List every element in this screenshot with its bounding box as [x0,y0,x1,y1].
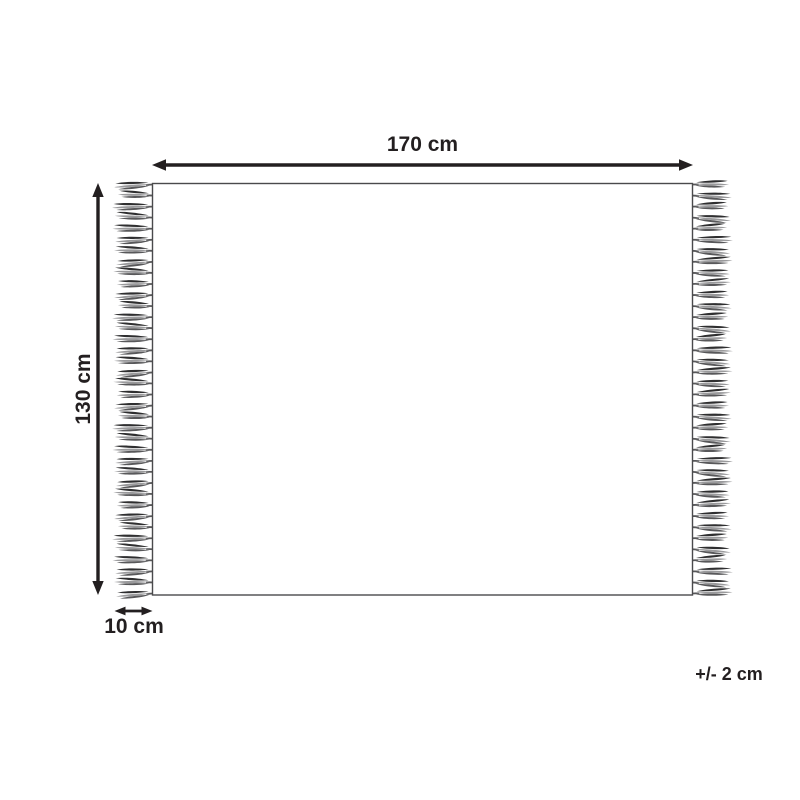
fringe-tassel [692,555,727,564]
fringe-tassel [112,556,152,564]
fringe-tassel [118,190,153,199]
fringe-tassel [692,588,732,597]
fringe-tassel [692,357,730,367]
fringe-tassel [115,346,153,355]
fringe-tassel [114,246,153,254]
fringe-tassel [692,379,729,387]
fringe-tassel [117,280,153,288]
fringe-tassel [114,402,153,412]
fringe-tassel [115,322,153,332]
fringe-tassel [692,388,731,398]
fringe-tassel [115,211,153,221]
fringe-tassel [692,423,728,431]
fringe-tassel [692,256,732,265]
fringe-tassel [692,435,731,445]
fringe-tassel [692,333,727,342]
height-dimension-label: 130 cm [72,329,96,449]
right-fringe [692,180,733,597]
fringe-tassel [692,192,732,201]
fringe-tassel [114,180,153,190]
fringe-tassel [112,534,153,542]
fringe-tassel [692,578,730,588]
fringe-tassel [692,312,728,320]
fringe-tassel [114,577,153,585]
fringe-tassel [692,457,732,465]
fringe-tassel [113,488,153,497]
fringe-tassel [692,499,731,509]
rug-outline [153,184,693,596]
fringe-tassel [692,346,732,354]
left-fringe [112,180,153,599]
fringe-tassel [692,490,729,498]
fringe-tassel [112,203,153,211]
fringe-tassel [112,313,153,321]
fringe-tassel [112,224,152,232]
fringe-tassel [113,377,153,386]
fringe-tassel [692,533,728,541]
fringe-tassel [692,269,729,277]
fringe-tassel [116,258,153,268]
fringe-tassel [117,391,153,399]
tolerance-note: +/- 2 cm [659,662,799,686]
fringe-dimension-label: 10 cm [94,615,174,639]
fringe-tassel [692,477,732,486]
fringe-tassel [692,223,727,232]
fringe-tassel [692,413,732,422]
fringe-tassel [692,291,729,299]
fringe-tassel [115,236,153,245]
product-dimension-diagram: 170 cm 130 cm 10 cm +/- 2 cm [0,0,800,800]
fringe-tassel [692,523,732,532]
fringe-tassel [113,267,153,276]
fringe-tassel [692,302,732,311]
fringe-tassel [692,214,731,224]
fringe-tassel [692,567,732,575]
fringe-tassel [116,368,153,378]
fringe-tassel [116,479,153,489]
fringe-tassel [112,335,152,343]
fringe-tassel [692,367,732,376]
width-dimension-label: 170 cm [152,133,693,157]
fringe-tassel [115,567,153,576]
fringe-tassel [114,356,153,364]
fringe-tassel [114,512,153,522]
fringe-tassel [692,202,728,210]
fringe-tassel [118,411,153,420]
fringe-tassel [692,236,732,244]
fringe-tassel [692,401,729,409]
fringe-tassel [692,324,731,334]
width-dimension-arrow [152,159,693,170]
fringe-tassel [692,512,729,520]
fringe-tassel [692,444,727,453]
fringe-tassel [117,501,153,509]
fringe-tassel [118,301,153,310]
fringe-tassel [115,432,153,442]
fringe-tassel [116,589,153,599]
fringe-tassel [692,247,730,257]
fringe-tassel [118,522,153,531]
fringe-tassel [112,445,152,453]
fringe-tassel [692,468,730,478]
fringe-tassel [692,278,731,288]
fringe-tassel [115,457,153,466]
fringe-tassel [115,543,153,553]
fringe-tassel [112,424,153,432]
fringe-tassel [114,467,153,475]
fringe-tassel [692,180,729,188]
fringe-tassel [692,545,731,555]
fringe-tassel [114,291,153,301]
